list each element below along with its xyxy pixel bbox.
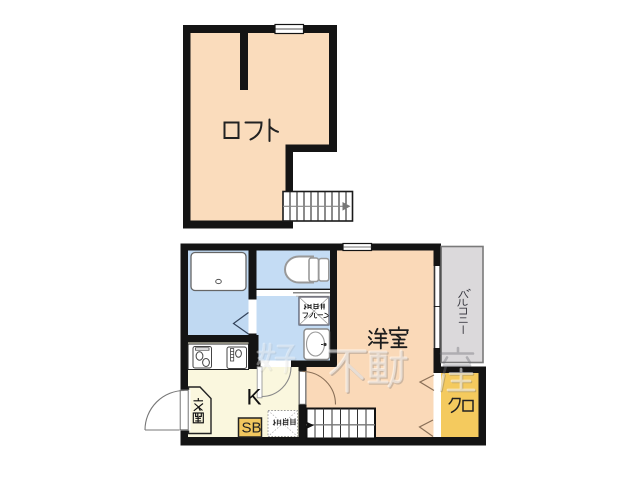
svg-text:SB: SB [242,420,262,437]
svg-text:K: K [247,385,262,410]
